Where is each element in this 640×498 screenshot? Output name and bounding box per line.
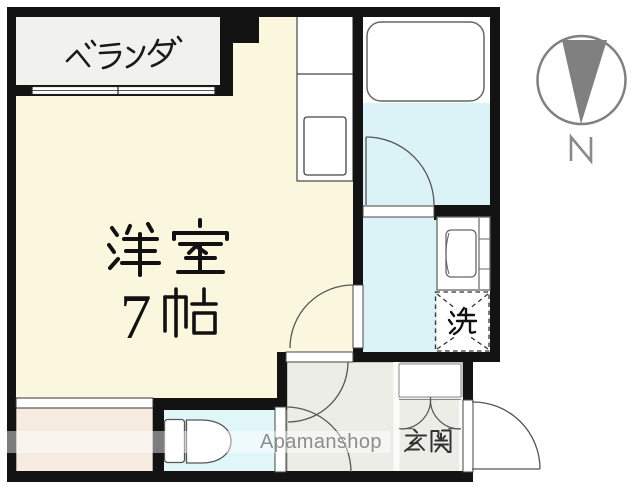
svg-text:7: 7: [120, 282, 152, 352]
svg-text:Apamanshop: Apamanshop: [260, 431, 382, 453]
